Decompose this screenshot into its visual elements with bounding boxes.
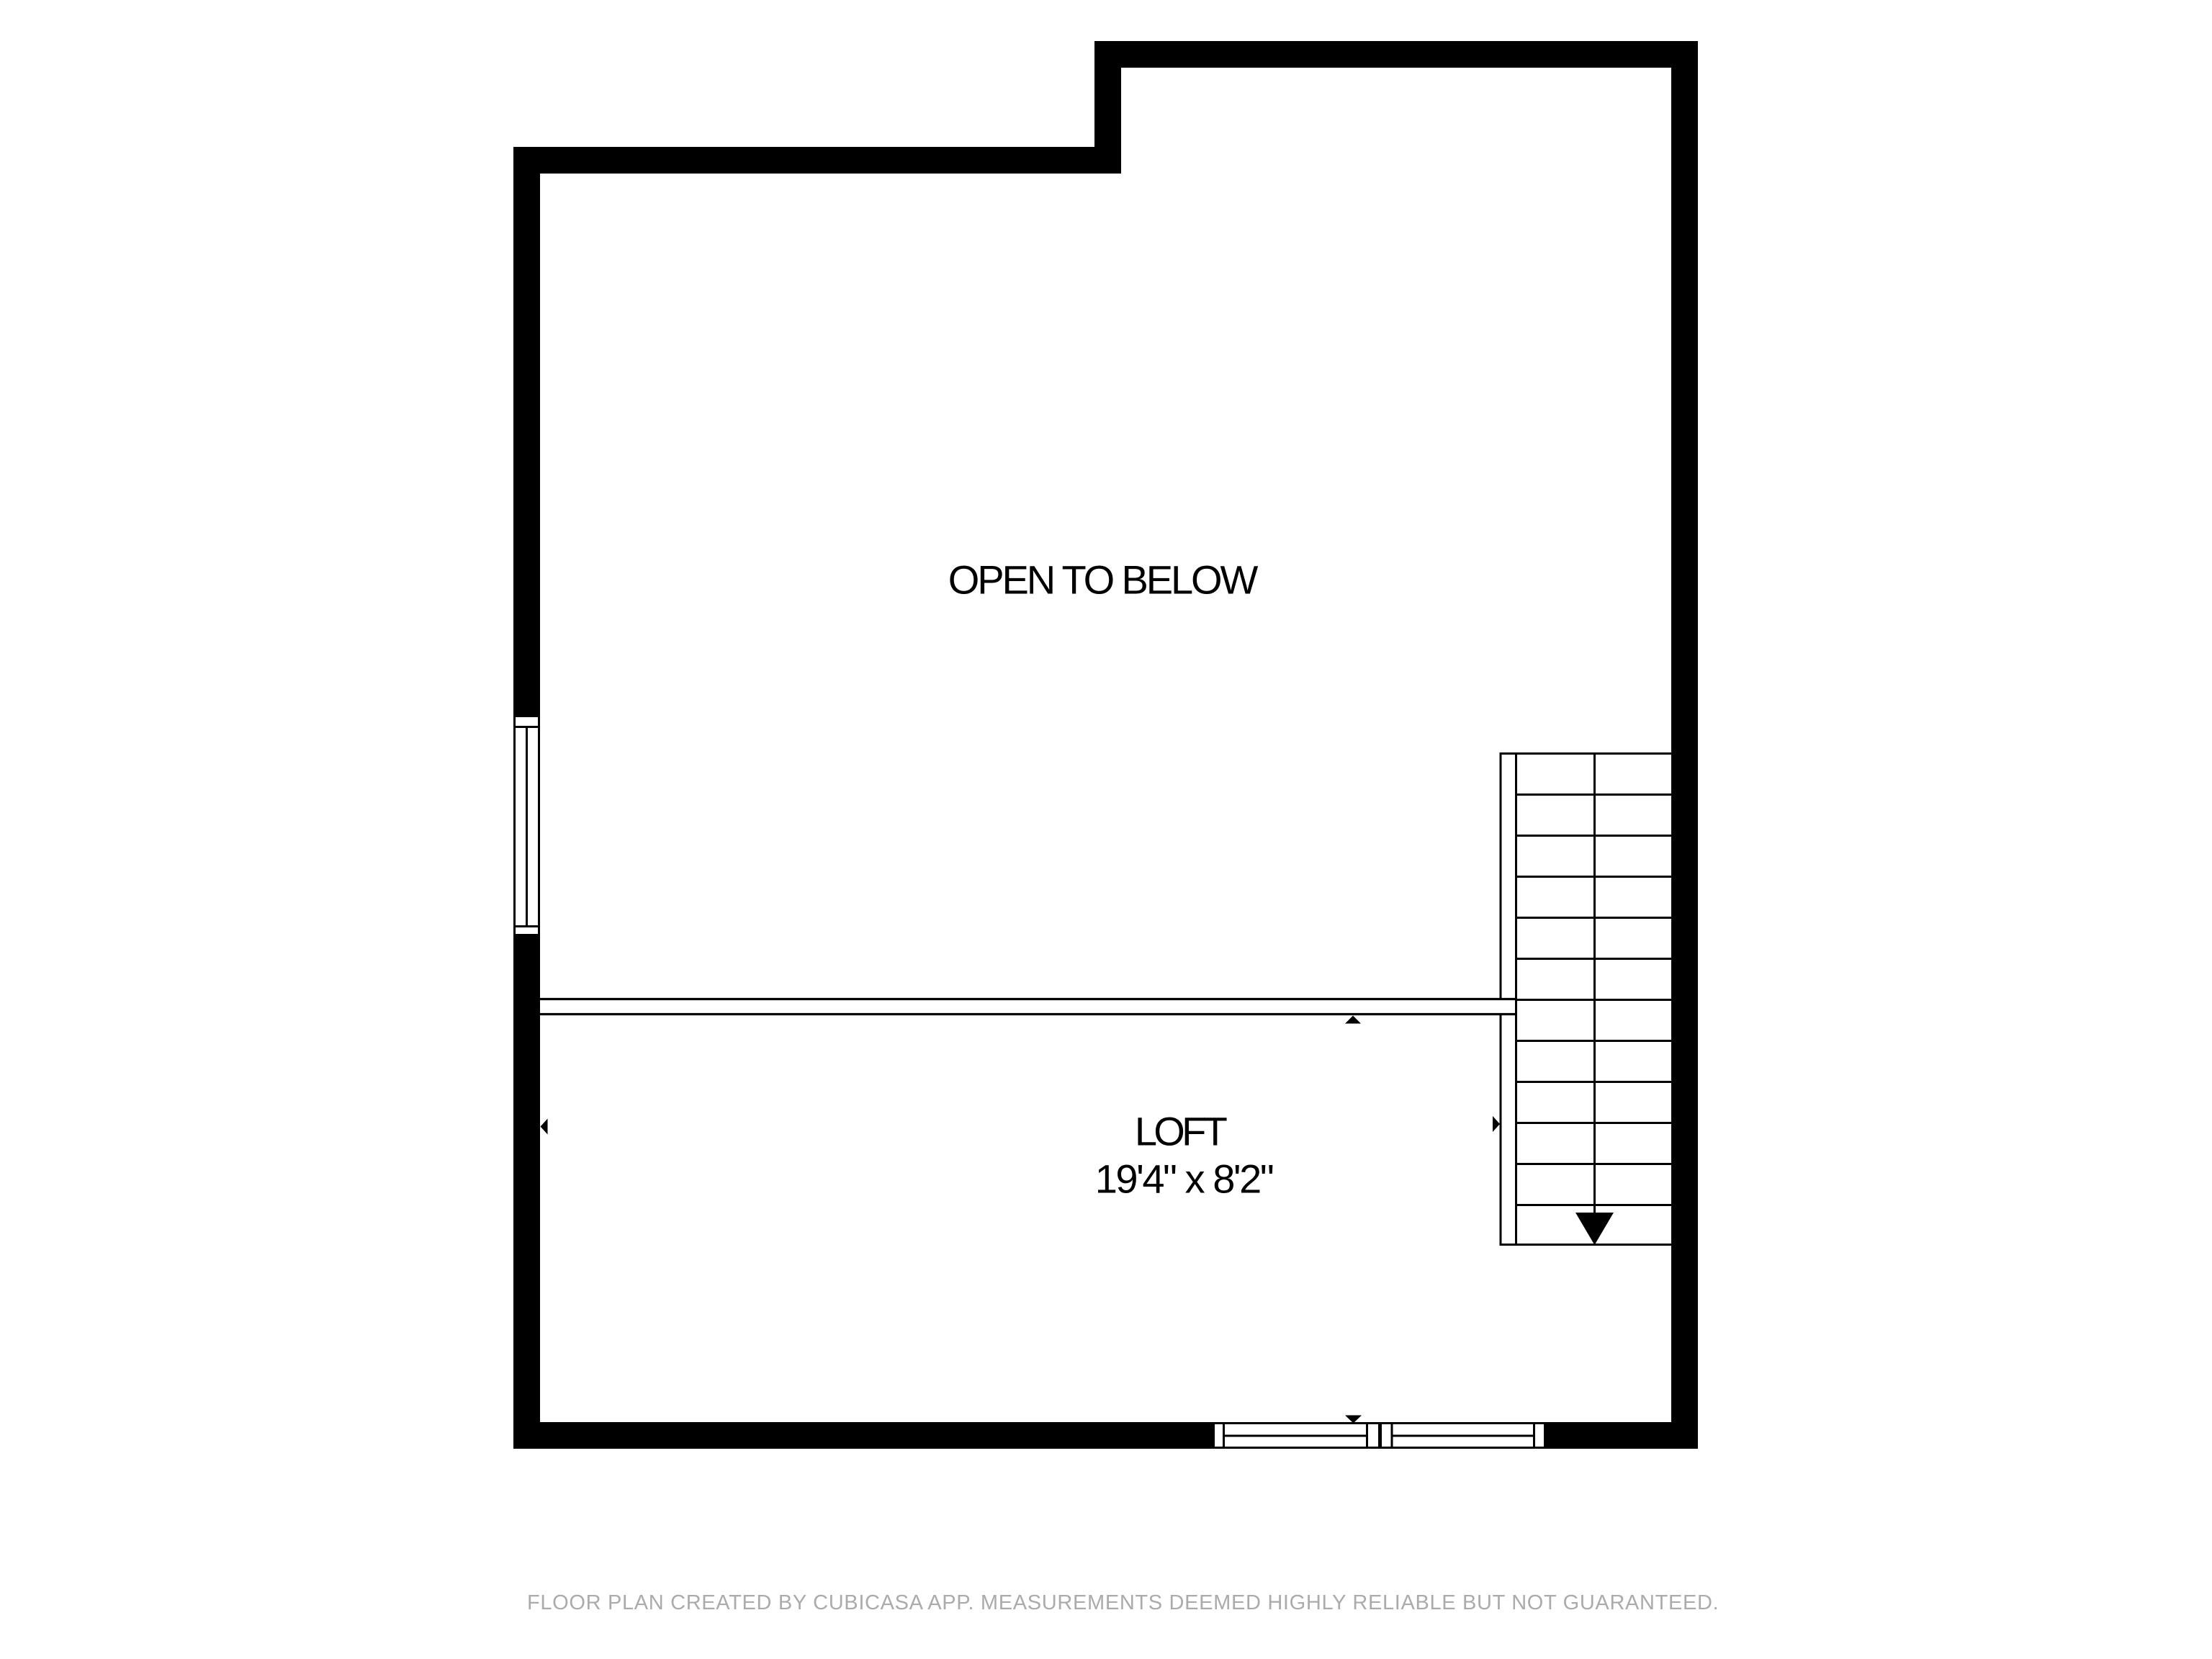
svg-text:LOFT: LOFT <box>1135 1109 1227 1154</box>
svg-text:19'4" x 8'2": 19'4" x 8'2" <box>1095 1156 1273 1202</box>
svg-text:OPEN TO BELOW: OPEN TO BELOW <box>948 557 1259 603</box>
svg-text:FLOOR PLAN CREATED BY CUBICASA: FLOOR PLAN CREATED BY CUBICASA APP. MEAS… <box>527 1591 1719 1614</box>
